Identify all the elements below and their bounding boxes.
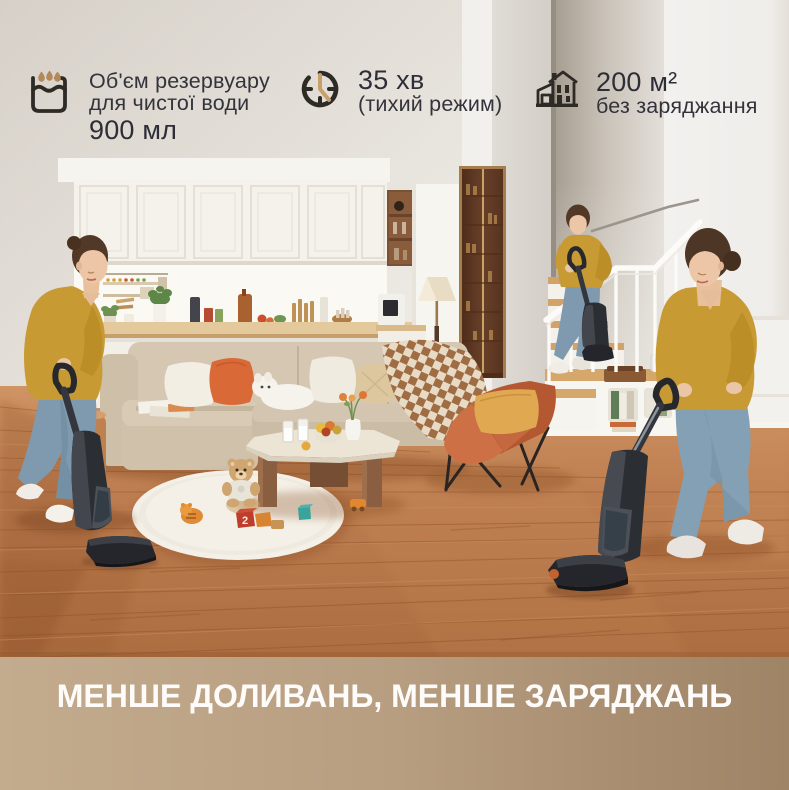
svg-text:2: 2 <box>242 515 248 527</box>
